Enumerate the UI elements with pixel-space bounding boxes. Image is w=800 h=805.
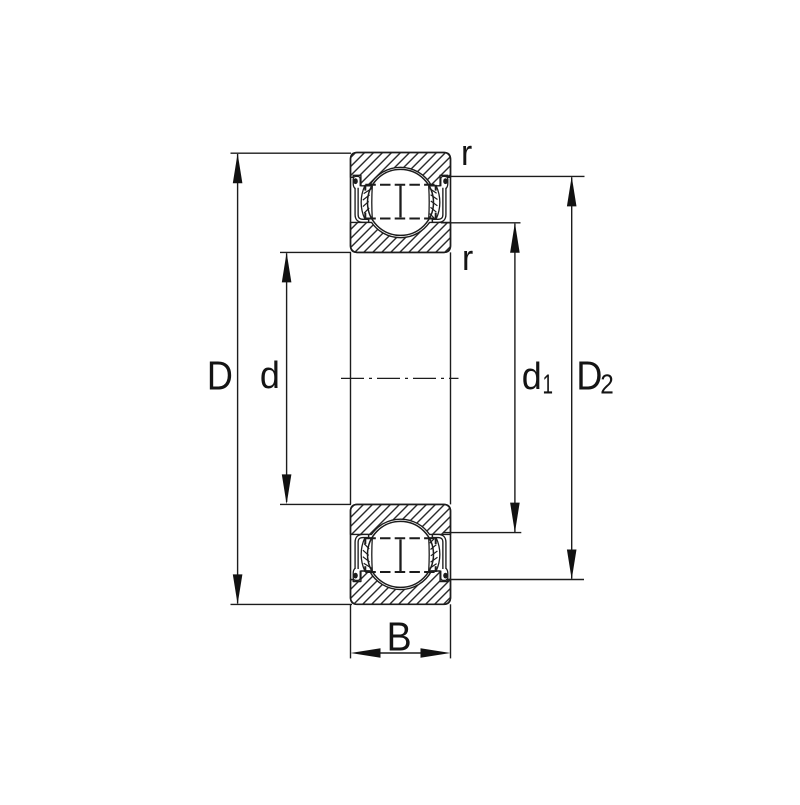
svg-text:2: 2 xyxy=(600,369,614,400)
svg-text:B: B xyxy=(387,614,412,660)
svg-text:d: d xyxy=(260,355,280,397)
svg-text:D: D xyxy=(207,353,233,399)
svg-text:1: 1 xyxy=(543,369,554,400)
svg-text:d: d xyxy=(522,356,542,398)
svg-text:D: D xyxy=(576,353,602,399)
svg-text:r: r xyxy=(462,237,473,278)
svg-text:r: r xyxy=(461,132,472,173)
